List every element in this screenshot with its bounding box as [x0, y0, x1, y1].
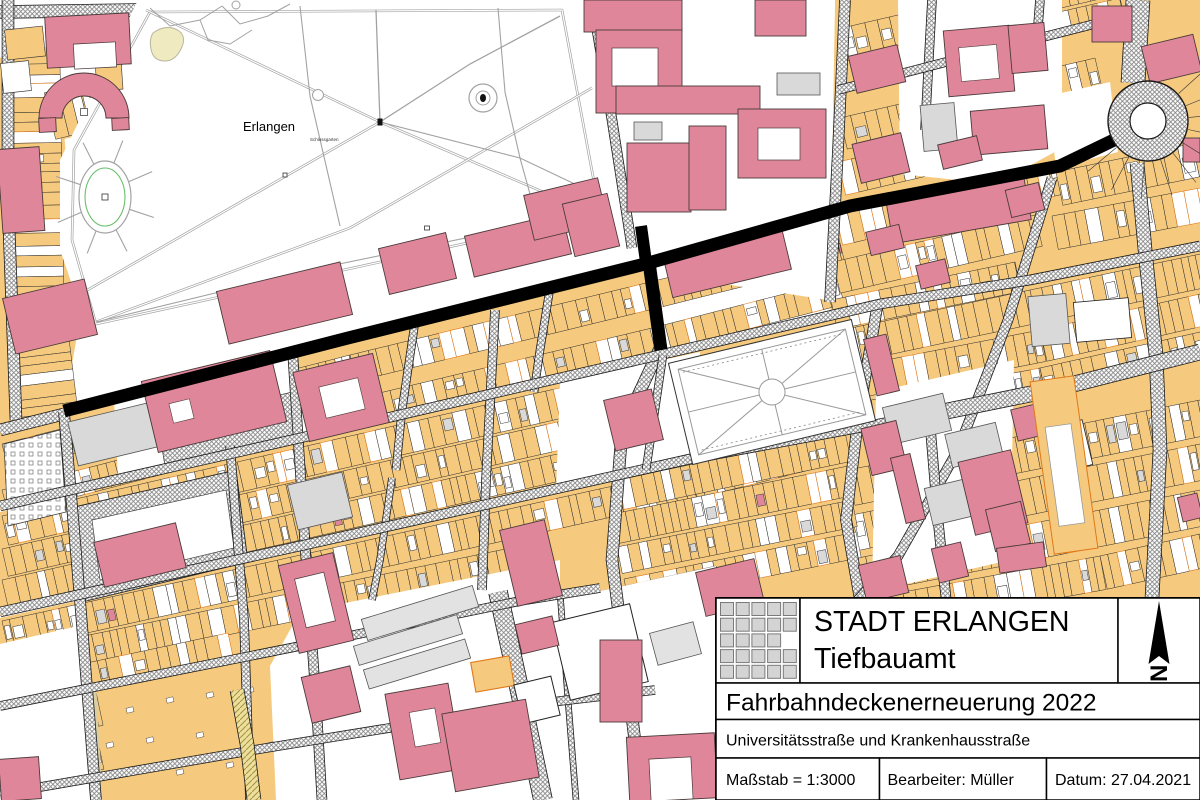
svg-text:Fahrbahndeckenerneuerung 2022: Fahrbahndeckenerneuerung 2022: [726, 690, 1097, 717]
svg-text:Universitätsstraße und Kranken: Universitätsstraße und Krankenhausstraße: [726, 733, 1030, 750]
svg-text:Erlangen: Erlangen: [243, 119, 295, 134]
svg-text:STADT ERLANGEN: STADT ERLANGEN: [814, 606, 1070, 638]
svg-text:Schlossgarten: Schlossgarten: [310, 137, 339, 142]
svg-text:Datum: 27.04.2021: Datum: 27.04.2021: [1055, 772, 1191, 789]
svg-text:Maßstab = 1:3000: Maßstab = 1:3000: [726, 772, 856, 789]
svg-text:N: N: [1146, 665, 1173, 682]
svg-text:Bearbeiter: Müller: Bearbeiter: Müller: [888, 772, 1015, 789]
svg-text:Tiefbauamt: Tiefbauamt: [814, 643, 956, 675]
